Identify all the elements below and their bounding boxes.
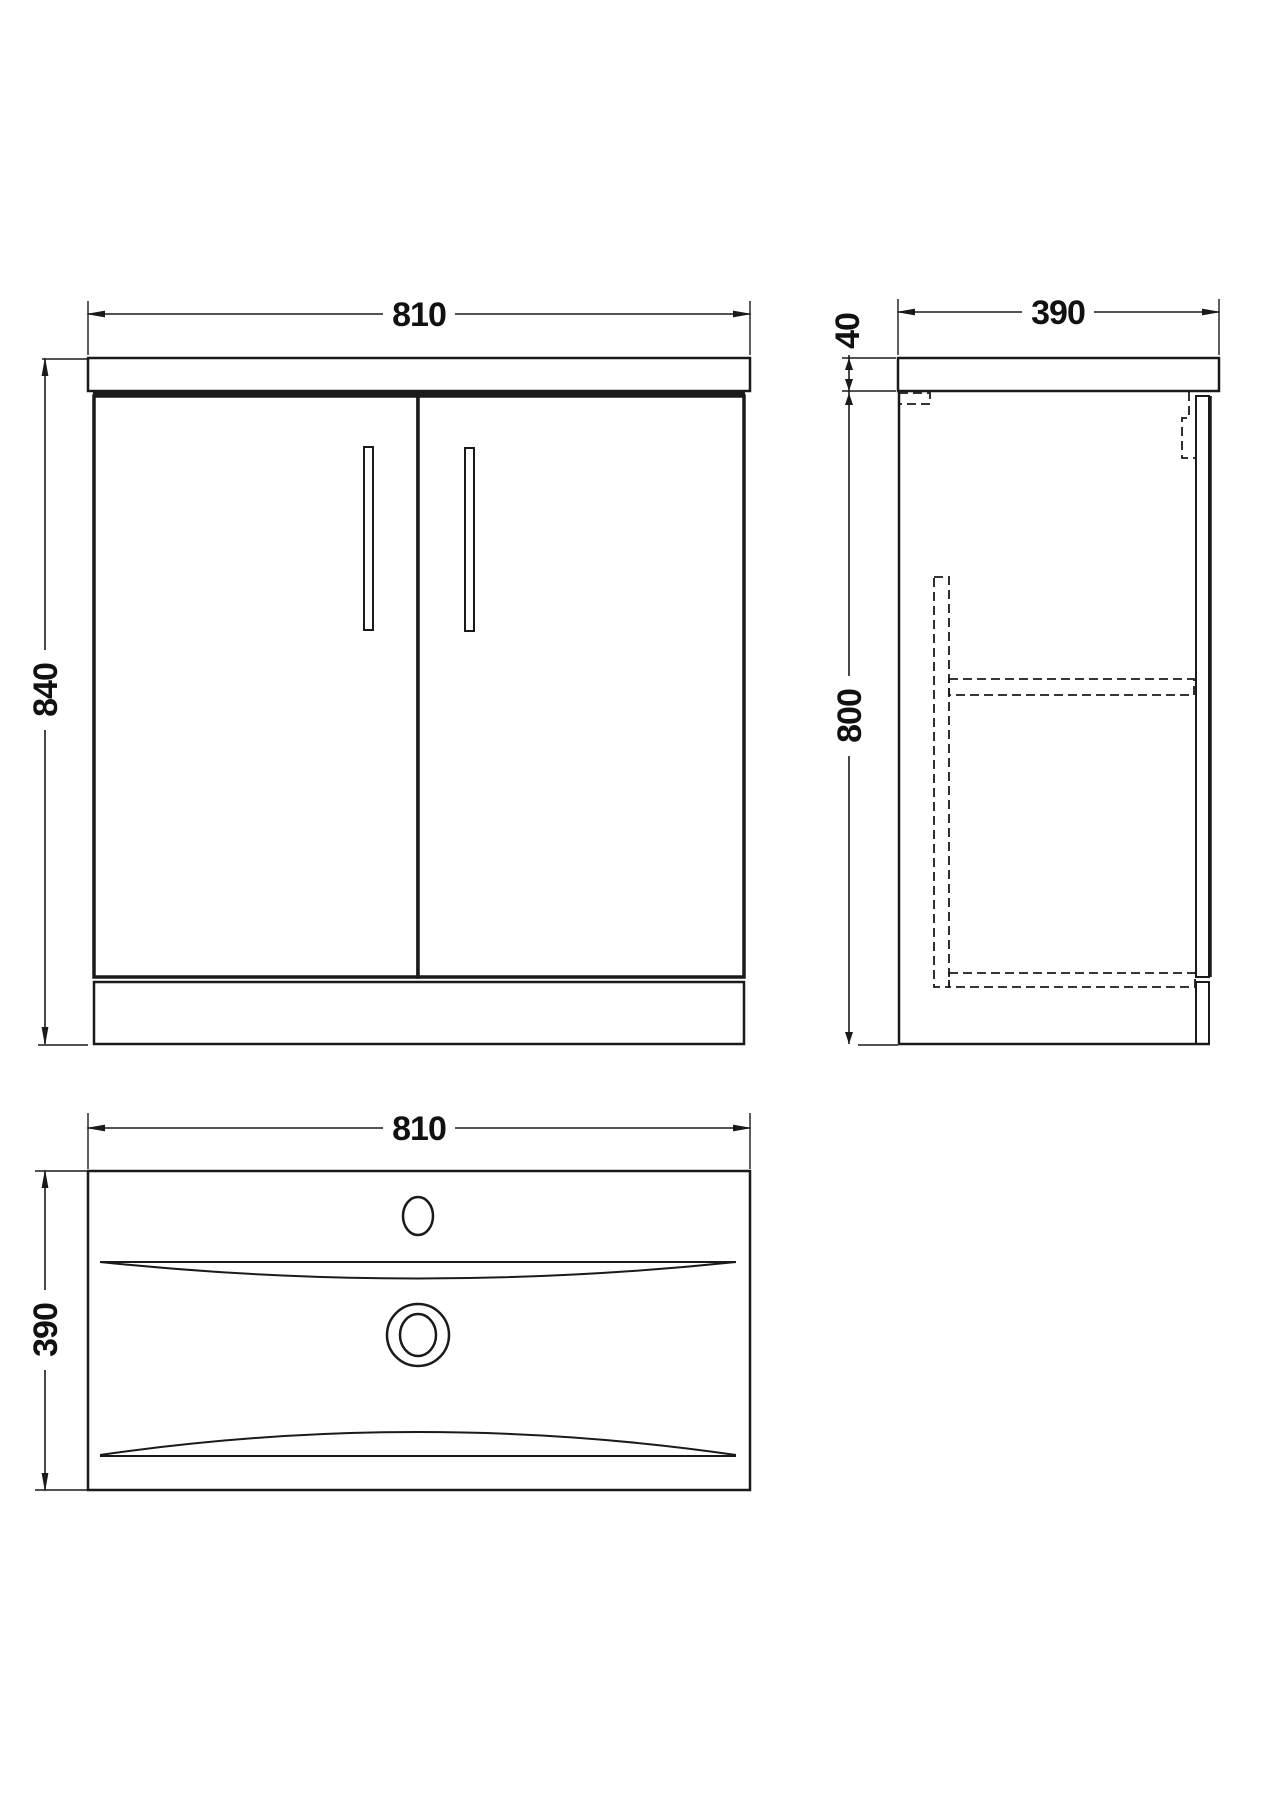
front-height-dimension-label: 840 [27, 663, 65, 717]
plan-view: 810 390 [27, 1110, 750, 1490]
dimension-arrow-down [845, 1032, 853, 1044]
side-hidden-hinge-recess [1182, 392, 1196, 458]
side-hidden-shelf [949, 679, 1194, 695]
front-right-door [418, 396, 744, 977]
dimension-arrow-up [845, 358, 853, 370]
front-left-door [94, 396, 418, 977]
front-elevation-view: 810 840 [27, 296, 750, 1045]
side-door-slab [1196, 396, 1209, 977]
plan-depth-dimension-label: 390 [27, 1303, 65, 1357]
plan-width-dimension-label: 810 [392, 1110, 446, 1148]
front-plinth [94, 982, 744, 1044]
plan-tap-hole [403, 1197, 433, 1235]
side-hidden-back-upstand [934, 577, 949, 987]
technical-drawing-page: 810 840 390 [0, 0, 1272, 1800]
side-elevation-view: 390 40 800 [829, 294, 1219, 1045]
side-countertop-thickness-label: 40 [829, 313, 867, 349]
side-height-dimensions: 40 800 [829, 308, 898, 1045]
dimension-arrow-down [845, 379, 853, 391]
front-width-dimension: 810 [88, 296, 750, 355]
side-depth-dimension: 390 [898, 294, 1219, 355]
side-countertop [898, 358, 1219, 391]
plan-depth-dimension: 390 [27, 1171, 88, 1490]
front-countertop [88, 358, 750, 391]
side-hidden-bottom-panel [949, 973, 1195, 987]
side-plinth [1196, 982, 1209, 1044]
side-hidden-fixing-bracket [899, 393, 930, 404]
front-height-dimension: 840 [27, 359, 88, 1045]
side-cabinet-height-label: 800 [831, 689, 869, 743]
vanity-unit-technical-drawing: 810 840 390 [0, 0, 1272, 1800]
plan-waste-inner-ring [400, 1314, 436, 1356]
dimension-arrow-up [845, 393, 853, 405]
plan-width-dimension: 810 [88, 1110, 750, 1169]
side-depth-dimension-label: 390 [1031, 294, 1085, 332]
front-width-dimension-label: 810 [392, 296, 446, 334]
